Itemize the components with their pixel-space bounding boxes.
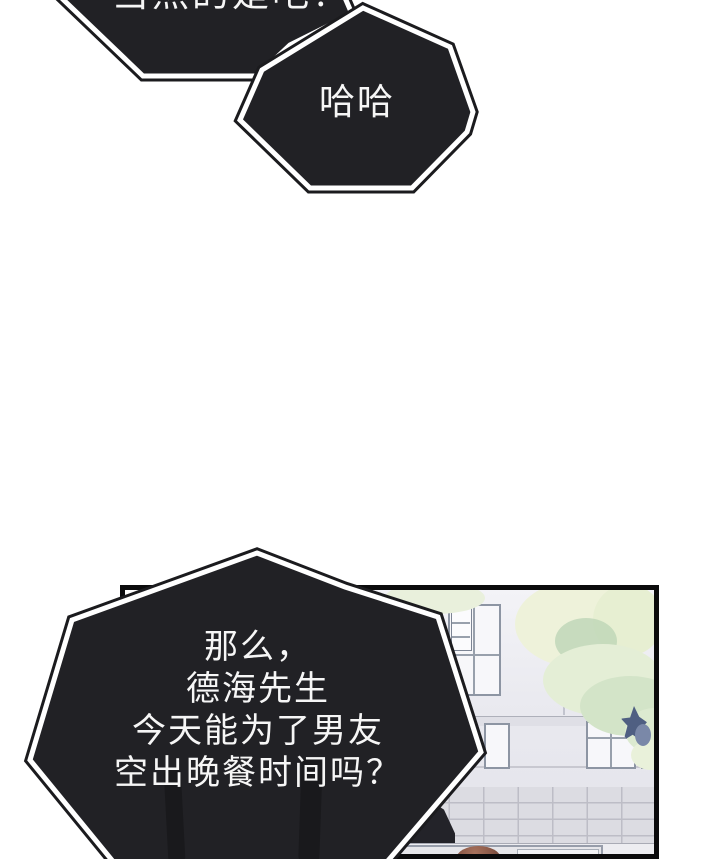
speech-bubble-haha: 哈哈 — [240, 8, 473, 188]
window — [484, 723, 510, 769]
speech-text: 哈哈 — [319, 81, 395, 122]
speech-bubble-top: 当然的是吧？ — [1, 0, 352, 76]
window-pane-grid — [451, 607, 472, 651]
ledge-panel — [517, 849, 599, 859]
sprig-plant — [635, 724, 651, 746]
comic-panel — [120, 585, 659, 859]
comic-page: { "page": { "background": "#ffffff", "bu… — [0, 0, 720, 859]
speech-text: 当然的是吧？ — [112, 0, 352, 14]
